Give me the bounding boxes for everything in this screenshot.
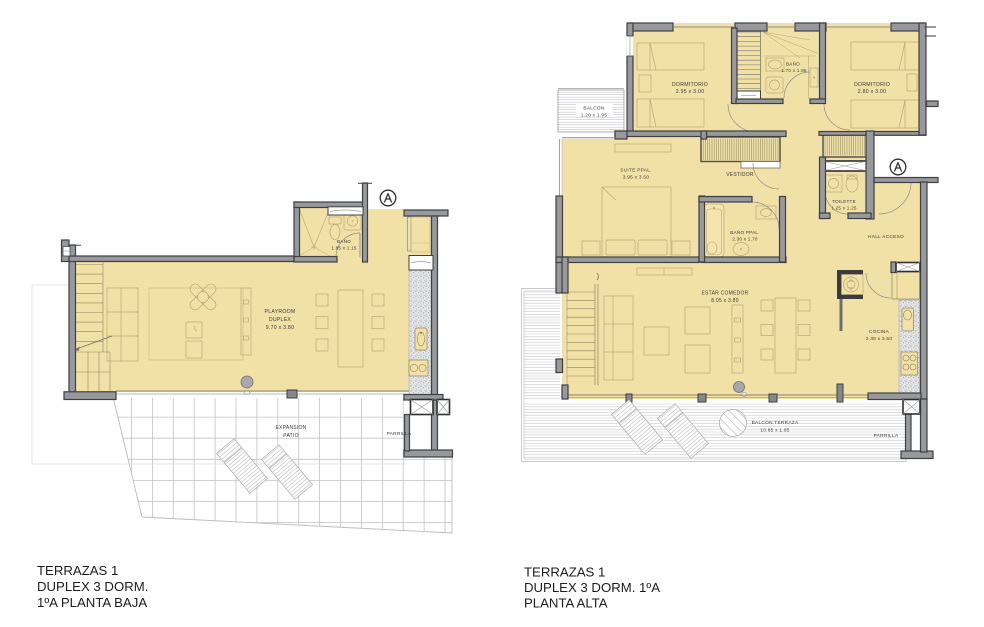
svg-text:PARRILLA: PARRILLA	[387, 431, 412, 437]
svg-text:8.05 x 3.80: 8.05 x 3.80	[711, 298, 739, 304]
svg-text:DUPLEX 3 DORM. 1ºA: DUPLEX 3 DORM. 1ºA	[524, 580, 660, 595]
svg-text:TERRAZAS 1: TERRAZAS 1	[37, 563, 118, 578]
svg-text:DORMITORIO: DORMITORIO	[854, 82, 890, 88]
svg-text:TOILETTE: TOILETTE	[832, 199, 856, 204]
svg-text:SUITE PPAL.: SUITE PPAL.	[620, 168, 651, 174]
svg-text:HALL ACCESO: HALL ACCESO	[868, 234, 904, 240]
svg-text:BAÑO: BAÑO	[786, 61, 800, 67]
svg-text:3.95 x 3.50: 3.95 x 3.50	[623, 175, 650, 181]
svg-text:2.95 x 3.00: 2.95 x 3.00	[676, 89, 704, 95]
svg-text:PARRILLA: PARRILLA	[874, 433, 899, 439]
svg-text:BAÑO PPAL.: BAÑO PPAL.	[730, 229, 759, 235]
svg-text:2.80 x 3.00: 2.80 x 3.00	[858, 89, 886, 95]
svg-text:COCINA: COCINA	[869, 329, 890, 335]
svg-text:DUPLEX 3 DORM.: DUPLEX 3 DORM.	[37, 579, 148, 594]
svg-text:ESTAR COMEDOR: ESTAR COMEDOR	[701, 291, 748, 297]
svg-text:1.20 x 1.95: 1.20 x 1.95	[581, 113, 608, 119]
svg-text:1.85 x 1.15: 1.85 x 1.15	[331, 246, 357, 251]
svg-text:PLANTA ALTA: PLANTA ALTA	[524, 596, 608, 611]
svg-text:DORMITORIO: DORMITORIO	[672, 82, 708, 88]
svg-text:1ºA PLANTA BAJA: 1ºA PLANTA BAJA	[37, 595, 147, 610]
svg-text:BALCON TERRAZA: BALCON TERRAZA	[752, 420, 799, 426]
svg-text:1.25 x 1.25: 1.25 x 1.25	[831, 206, 857, 211]
svg-text:DUPLEX: DUPLEX	[269, 317, 292, 323]
svg-text:BALCON: BALCON	[583, 106, 605, 112]
svg-text:1.70 x 1.95: 1.70 x 1.95	[781, 68, 807, 73]
svg-text:BAÑO: BAÑO	[337, 238, 351, 244]
svg-text:9.70 x 3.80: 9.70 x 3.80	[266, 325, 294, 331]
svg-text:10.85 x 1.85: 10.85 x 1.85	[760, 428, 789, 434]
svg-text:PATIO: PATIO	[283, 433, 299, 439]
svg-text:EXPANSION: EXPANSION	[275, 425, 306, 431]
svg-text:2.30 x 1.70: 2.30 x 1.70	[732, 237, 758, 242]
svg-text:TERRAZAS 1: TERRAZAS 1	[524, 565, 605, 580]
svg-text:VESTIDOR: VESTIDOR	[726, 172, 754, 178]
svg-text:PLAYROOM: PLAYROOM	[264, 309, 295, 315]
svg-text:2.30 x 3.50: 2.30 x 3.50	[866, 336, 893, 342]
